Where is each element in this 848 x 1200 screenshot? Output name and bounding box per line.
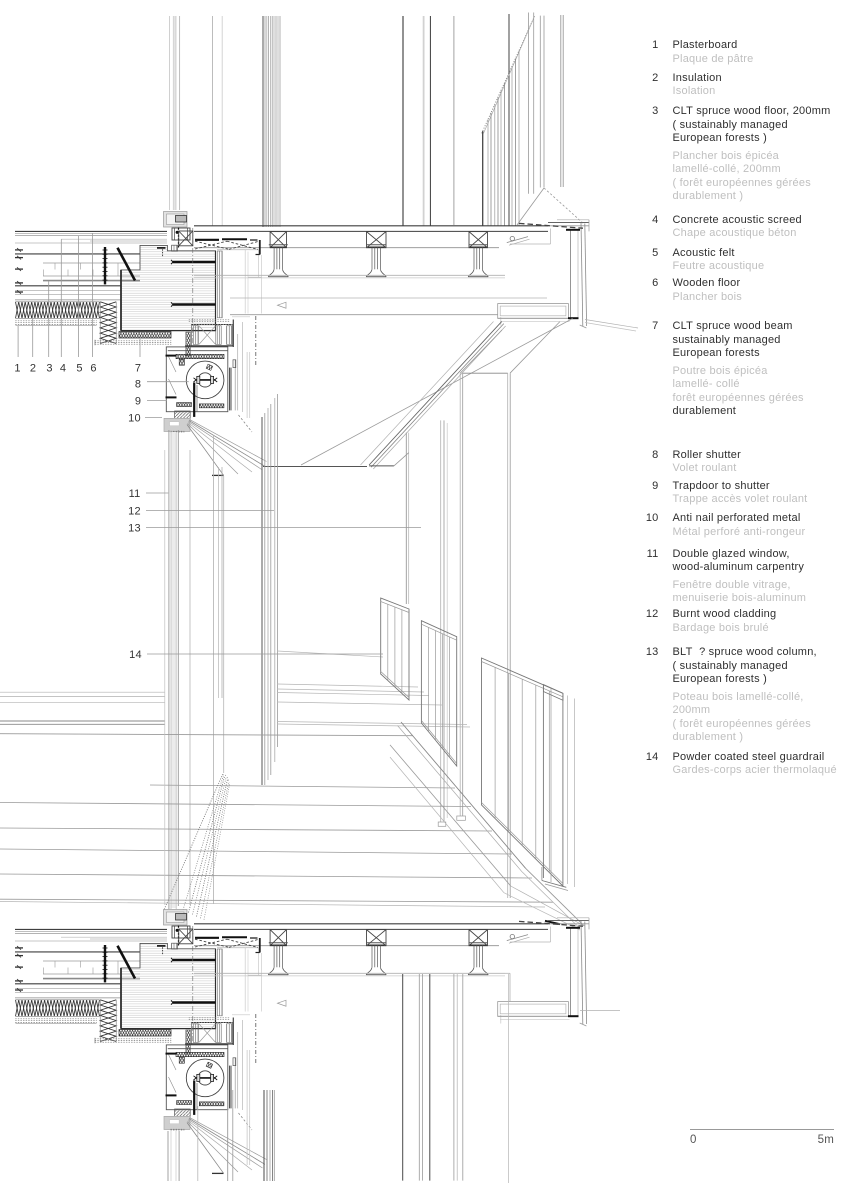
svg-text:10: 10 bbox=[128, 413, 141, 425]
svg-text:11: 11 bbox=[129, 488, 141, 500]
svg-text:14: 14 bbox=[129, 649, 142, 661]
svg-text:9: 9 bbox=[135, 395, 141, 407]
svg-text:13: 13 bbox=[128, 523, 141, 535]
svg-text:5: 5 bbox=[76, 363, 82, 375]
svg-text:5m: 5m bbox=[818, 1134, 834, 1146]
svg-text:8: 8 bbox=[135, 379, 141, 391]
svg-text:1: 1 bbox=[14, 363, 20, 375]
svg-text:2: 2 bbox=[30, 363, 36, 375]
svg-text:0: 0 bbox=[690, 1134, 697, 1146]
svg-text:7: 7 bbox=[135, 363, 141, 375]
svg-text:6: 6 bbox=[90, 363, 96, 375]
svg-text:3: 3 bbox=[46, 363, 52, 375]
svg-text:4: 4 bbox=[60, 363, 66, 375]
svg-text:12: 12 bbox=[128, 506, 141, 518]
